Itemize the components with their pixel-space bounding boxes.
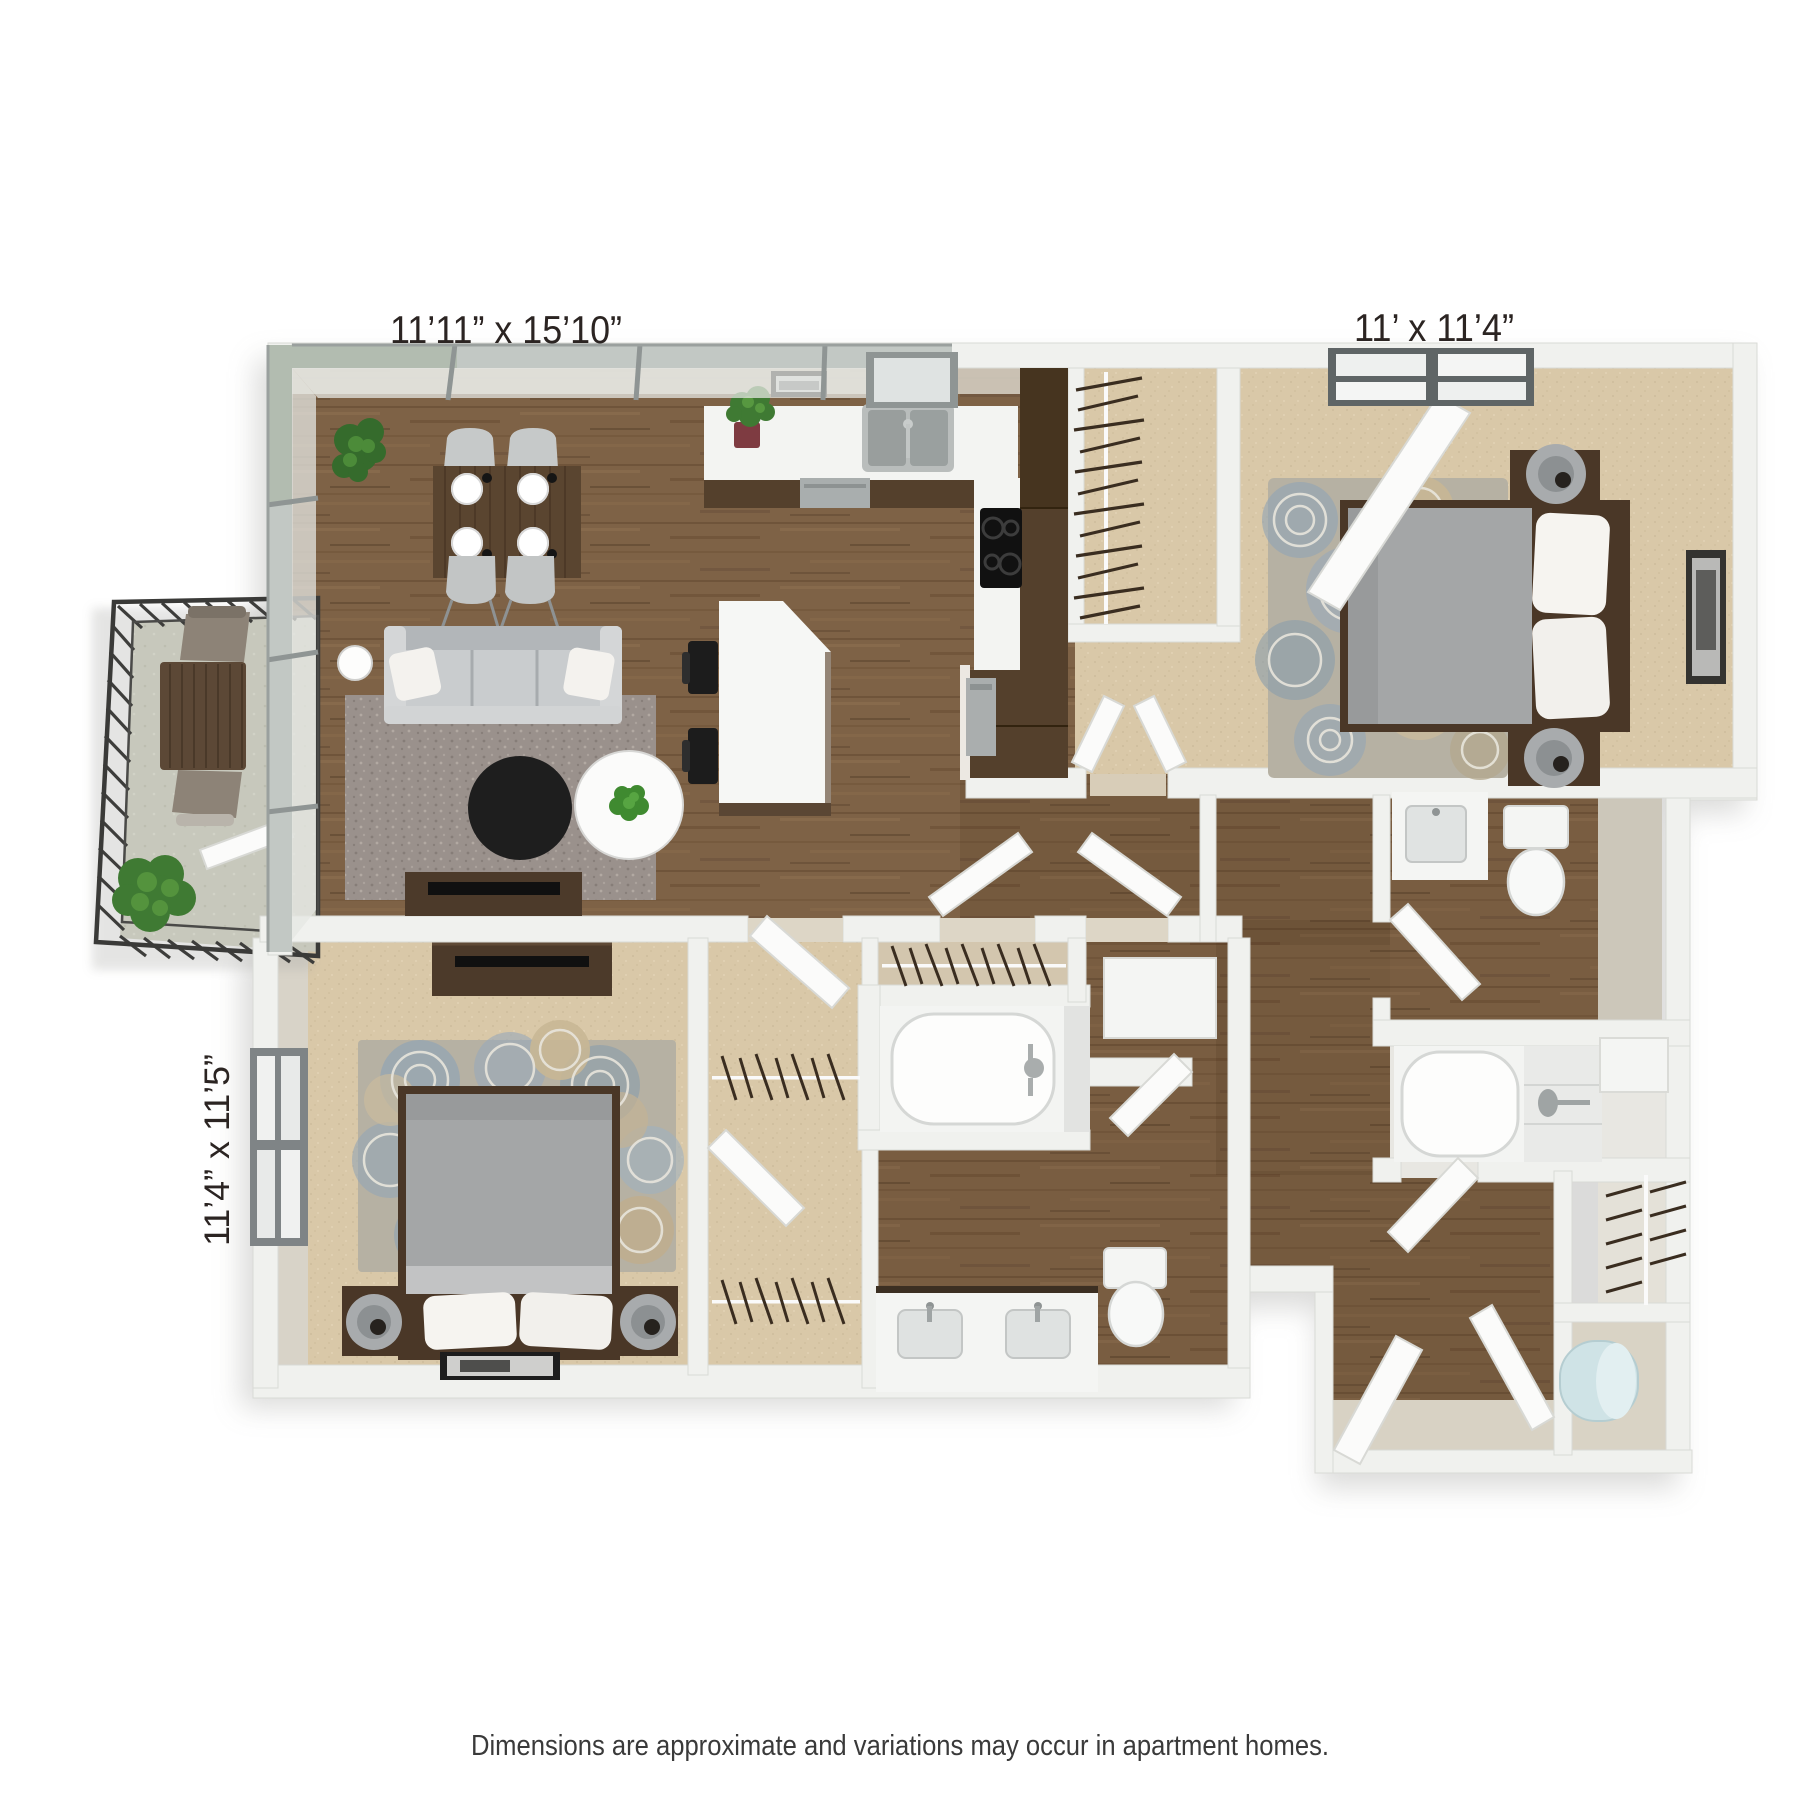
svg-text:Dimensions are approximate and: Dimensions are approximate and variation… xyxy=(471,1730,1329,1762)
svg-text:11’11” x 15’10”: 11’11” x 15’10” xyxy=(390,309,622,352)
svg-text:11’4” x 11’5”: 11’4” x 11’5” xyxy=(198,1054,237,1246)
svg-text:11’ x 11’4”: 11’ x 11’4” xyxy=(1354,307,1514,350)
